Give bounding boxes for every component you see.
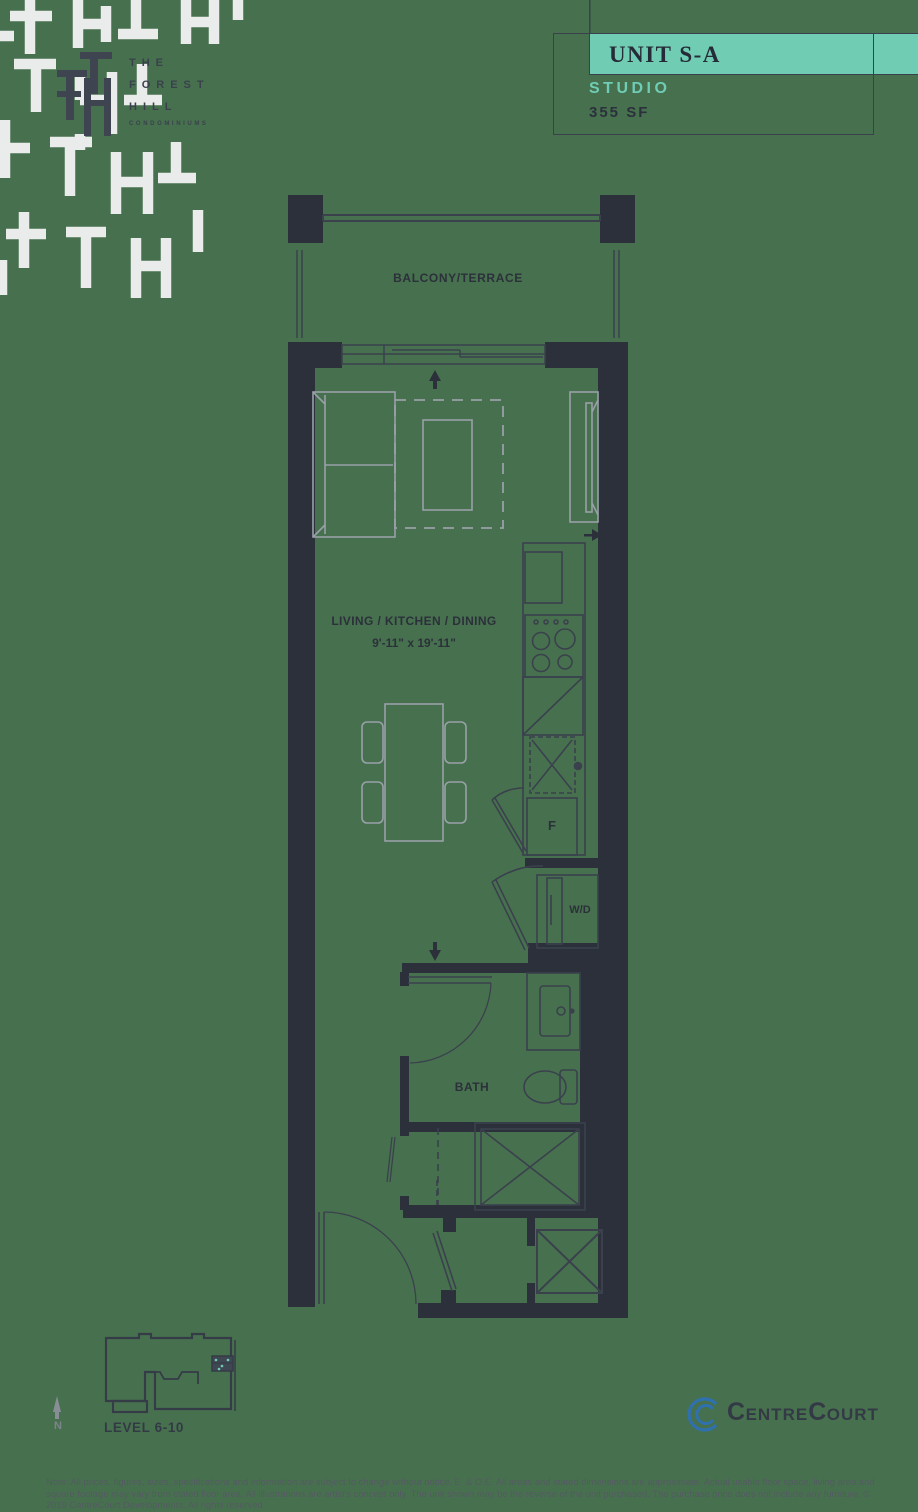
north-label: N	[50, 1420, 66, 1432]
centrecourt-wordmark: CENTRECOURT	[727, 1398, 879, 1427]
living-room-label: LIVING / KITCHEN / DINING	[314, 614, 514, 628]
entry-direction-arrows	[429, 370, 602, 961]
closet-door-ajar	[387, 1137, 395, 1182]
coffee-table	[423, 420, 472, 510]
vanity-sink	[527, 973, 580, 1050]
wordmark-entre: ENTRE	[746, 1405, 809, 1424]
living-room-dimensions: 9'-11" x 19'-11"	[314, 636, 514, 650]
hall-closet-door	[433, 1231, 456, 1291]
title-tick-line	[589, 0, 591, 34]
brand-name-line2: FOREST	[129, 79, 210, 91]
bed-dashed-outline	[395, 400, 503, 528]
kitchen-counter	[523, 543, 585, 855]
wordmark-c1: C	[727, 1398, 746, 1426]
upper-cabinet	[525, 552, 562, 603]
entry-door-swing	[324, 1212, 416, 1304]
dishwasher	[523, 677, 583, 735]
unit-type: STUDIO	[589, 80, 670, 98]
wordmark-ourt: OURT	[827, 1405, 879, 1424]
shaft-box	[537, 1230, 602, 1293]
unit-name: UNIT S-A	[609, 42, 721, 68]
sofa	[313, 392, 395, 537]
kitchen	[492, 543, 585, 855]
washer-dryer-label: W/D	[560, 904, 600, 916]
bath-door-swing	[410, 983, 491, 1063]
brand-name-line3: HILL	[129, 101, 177, 113]
brand-tagline: CONDOMINIUMS	[129, 121, 209, 127]
stove	[525, 615, 583, 677]
brand-name-line1: THE	[129, 57, 169, 69]
key-plan-level-label: LEVEL 6-10	[104, 1420, 184, 1435]
toilet	[524, 1070, 577, 1104]
dining-table-and-chairs	[362, 704, 466, 841]
unit-location-marker	[212, 1356, 233, 1371]
tfh-monogram-logo	[57, 52, 112, 136]
unit-area: 355 SF	[589, 104, 649, 121]
balcony-window	[342, 345, 545, 364]
entry-door-leaf	[319, 1212, 324, 1304]
entry	[319, 1180, 602, 1304]
key-plan	[106, 1334, 235, 1412]
decorative-letter-pattern	[0, 0, 238, 298]
wordmark-c2: C	[808, 1398, 827, 1426]
balcony-label: BALCONY/TERRACE	[330, 271, 586, 285]
centrecourt-logo-icon	[689, 1399, 716, 1430]
floorplan-page: THE FOREST HILL CONDOMINIUMS UNIT S-A ST…	[0, 0, 918, 1512]
fridge-label: F	[537, 818, 567, 833]
kitchen-sink	[530, 737, 582, 793]
legal-disclaimer: Note: All prices, figures, sizes, specif…	[46, 1476, 876, 1511]
bath-door-leaf	[408, 977, 492, 983]
media-unit	[570, 392, 598, 522]
floor-plan-drawing	[0, 0, 918, 1512]
north-arrow-icon	[53, 1396, 61, 1419]
bath-label: BATH	[447, 1080, 497, 1094]
shower	[475, 1123, 585, 1210]
balcony	[288, 195, 635, 338]
